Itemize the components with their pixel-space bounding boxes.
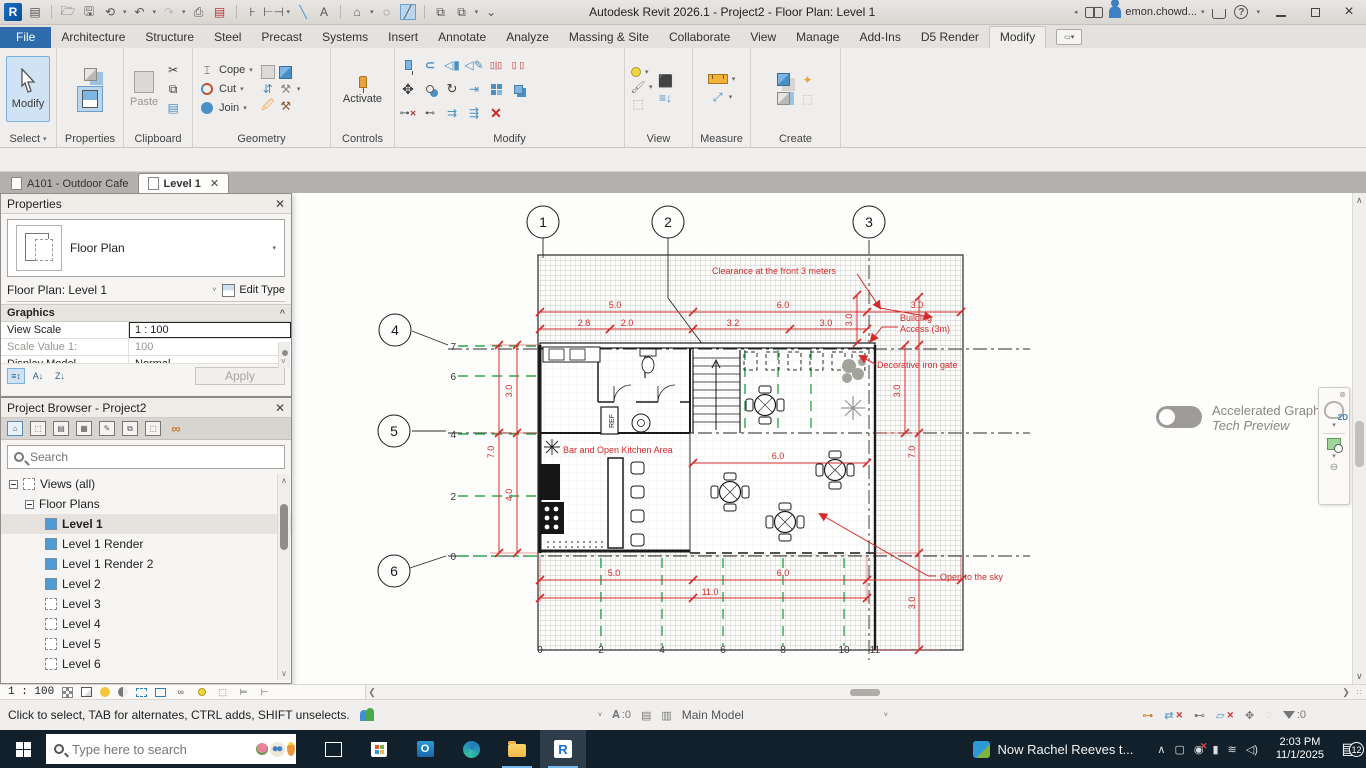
redo-icon[interactable]: ↷ xyxy=(161,4,177,20)
tab-d5-render[interactable]: D5 Render xyxy=(911,27,989,48)
type-name: Floor Plan xyxy=(70,241,272,255)
create-assembly-icon[interactable]: ⬚ xyxy=(800,91,816,107)
show-crop-region-icon[interactable] xyxy=(155,688,166,697)
print-icon[interactable]: ⎙ xyxy=(191,4,207,20)
default-3d-view-icon[interactable]: ⌂ xyxy=(349,4,365,20)
navbar-minimize-icon[interactable]: ⊖ xyxy=(1330,462,1338,473)
array-icon[interactable] xyxy=(488,81,504,97)
taskbar-search[interactable] xyxy=(46,734,296,764)
ribbon: Modify Select▾ Properties Paste ✂ ⧉ xyxy=(0,48,1366,148)
section-icon[interactable]: ◌ xyxy=(379,4,395,20)
news-icon xyxy=(973,741,990,758)
trim-multiple-icon[interactable]: ⇶ xyxy=(466,105,482,121)
project-browser-panel: Project Browser - Project2 ✕ ⌂ ⬚ ▤ ▦ ✎ ⧉… xyxy=(0,397,292,684)
project-browser-title[interactable]: Project Browser - Project2 ✕ xyxy=(1,398,291,418)
restore-button[interactable] xyxy=(1302,3,1328,21)
hide-category-icon[interactable]: ⬛ xyxy=(659,74,673,88)
floor-plan-view-icon xyxy=(45,578,57,590)
svg-text:6.0: 6.0 xyxy=(772,451,785,461)
analytical-model-icon[interactable]: ⬚ xyxy=(216,687,229,698)
tree-floor-plans[interactable]: Floor Plans xyxy=(1,494,291,514)
constraints-icon[interactable]: ⊨ xyxy=(237,687,250,698)
browser-sheets-icon[interactable]: ▦ xyxy=(76,421,92,436)
bar-note: Bar and Open Kitchen Area xyxy=(563,445,673,455)
override-graphics-icon[interactable]: 🖌 xyxy=(631,80,645,94)
tree-item-level-1-render[interactable]: Level 1 Render xyxy=(1,534,291,554)
svg-text:4: 4 xyxy=(659,645,665,656)
activate-button[interactable]: Activate xyxy=(343,93,382,105)
join-button[interactable]: Join xyxy=(219,102,239,114)
beam-joins-icon[interactable] xyxy=(279,65,293,79)
paint-icon[interactable]: 🖉 xyxy=(261,99,275,113)
displace-elements-icon[interactable]: ⬚ xyxy=(631,97,645,111)
dim-caret-icon[interactable]: ▾ xyxy=(287,8,291,16)
switch-windows-icon[interactable]: ⧉ xyxy=(454,4,470,20)
property-row-display-model[interactable]: Display Model Normal xyxy=(1,356,291,364)
tab-add-ins[interactable]: Add-Ins xyxy=(849,27,910,48)
infocenter-caret-icon[interactable]: ◂ xyxy=(1074,8,1078,16)
clearance-note: Clearance at the front 3 meters xyxy=(712,266,837,276)
view-tab-row: A101 - Outdoor Cafe Level 1 ✕ xyxy=(0,172,1366,193)
search-doodle-icon[interactable] xyxy=(256,742,295,757)
edge-icon xyxy=(463,741,480,758)
apply-button[interactable]: Apply xyxy=(195,367,285,385)
temporary-hide-icon[interactable] xyxy=(195,687,208,698)
qat-customize-icon[interactable]: ⌄ xyxy=(483,4,499,20)
floor-plan-view-icon xyxy=(45,638,57,650)
floor-plan-view-icon xyxy=(45,618,57,630)
panel-create: ✦ ⬚ Create xyxy=(751,48,841,147)
properties-window-icon[interactable]: ▤ xyxy=(27,4,43,20)
view-control-row: 1 : 100 ∞ ⬚ ⊨ ⊢ ❮ ❯ ∷ xyxy=(0,684,1366,699)
grid-bubble-5: 5 xyxy=(390,423,398,439)
redo-caret-icon[interactable]: ▾ xyxy=(182,8,186,16)
browser-tree: Views (all) Floor Plans Level 1 Level 1 … xyxy=(1,474,291,680)
tree-views-all[interactable]: Views (all) xyxy=(1,474,291,494)
system-tray: ∧ ▢ ◉✕ ▮ ≋ ◁) xyxy=(1157,743,1257,756)
taskbar-outlook[interactable]: O xyxy=(402,730,448,768)
graphics-section-header[interactable]: Graphics ^ xyxy=(1,304,291,322)
accelerated-graphics-widget: Accelerated Graphics Tech Preview xyxy=(1156,403,1336,433)
tab-analyze[interactable]: Analyze xyxy=(496,27,559,48)
tree-item-level-1-render-2[interactable]: Level 1 Render 2 xyxy=(1,554,291,574)
tray-mute-icon[interactable]: ◉✕ xyxy=(1194,743,1204,756)
press-drag-icon[interactable]: ◌ xyxy=(1265,709,1272,721)
match-properties-icon[interactable] xyxy=(82,67,98,83)
clock-date: 11/1/2025 xyxy=(1276,749,1324,761)
taskbar-search-input[interactable] xyxy=(72,742,248,757)
collapse-box-icon[interactable] xyxy=(9,480,18,489)
windows-taskbar: O R Now Rachel Reeves t... ∧ ▢ ◉✕ ▮ ≋ ◁)… xyxy=(0,730,1366,768)
create-parts-icon[interactable] xyxy=(776,91,792,107)
panel-clipboard-label[interactable]: Clipboard xyxy=(124,130,192,147)
select-pinned-icon[interactable]: ⊷ xyxy=(1194,709,1205,722)
properties-scrollbar[interactable]: ˅ xyxy=(278,342,290,368)
linework-icon[interactable]: ≡↓ xyxy=(659,91,673,105)
tree-item-level-6[interactable]: Level 6 xyxy=(1,654,291,674)
accelerated-graphics-toggle[interactable] xyxy=(1156,406,1202,428)
split-element-icon[interactable]: ▯|▯ xyxy=(488,57,504,73)
aligned-dimension-icon[interactable]: ⊢⊣ xyxy=(266,4,282,20)
tab-massing-site[interactable]: Massing & Site xyxy=(559,27,659,48)
panel-controls-label[interactable]: Controls xyxy=(331,130,394,147)
panel-create-label[interactable]: Create xyxy=(751,130,840,147)
taskbar-search-icon xyxy=(54,744,64,754)
browser-search-input[interactable] xyxy=(30,450,278,464)
home-caret-icon[interactable]: ▾ xyxy=(370,8,374,16)
entry-mat xyxy=(545,538,613,552)
tab-structure[interactable]: Structure xyxy=(135,27,204,48)
text-icon[interactable]: A xyxy=(316,4,332,20)
clock-time: 2:03 PM xyxy=(1279,736,1320,748)
edit-type-button[interactable]: Edit Type xyxy=(222,284,285,297)
move-icon[interactable]: ✥ xyxy=(400,81,416,97)
steering-wheel-icon[interactable]: 2D xyxy=(1324,401,1344,419)
tree-item-level-5[interactable]: Level 5 xyxy=(1,634,291,654)
tab-systems[interactable]: Systems xyxy=(312,27,378,48)
cope-button[interactable]: Cope xyxy=(219,64,245,76)
building-access-note-2: Access (3m) xyxy=(900,324,950,334)
unpin-icon[interactable]: ⊶✕ xyxy=(400,105,416,121)
measure-pin-icon[interactable]: ⊦ xyxy=(245,4,261,20)
browser-groups-icon[interactable]: ⧉ xyxy=(122,421,138,436)
panel-clipboard: Paste ✂ ⧉ ▤ Clipboard xyxy=(124,48,193,147)
visual-style-icon[interactable] xyxy=(81,687,92,697)
status-bar: Click to select, TAB for alternates, CTR… xyxy=(0,699,1366,730)
property-row-view-scale[interactable]: View Scale 1 : 100 xyxy=(1,322,291,339)
task-view-icon xyxy=(325,742,342,757)
panel-view-label[interactable]: View xyxy=(625,130,692,147)
activate-controls-icon xyxy=(355,74,371,90)
tag-icon[interactable]: ╲ xyxy=(295,4,311,20)
view-tab-level1[interactable]: Level 1 ✕ xyxy=(138,173,230,193)
taskbar-edge[interactable] xyxy=(448,730,494,768)
select-by-face-icon[interactable]: ▱✕ xyxy=(1216,709,1234,722)
cursor-icon xyxy=(18,68,38,94)
tree-item-level-1[interactable]: Level 1 xyxy=(1,514,291,534)
svg-text:7: 7 xyxy=(450,342,456,353)
svg-text:7.0: 7.0 xyxy=(907,446,917,459)
sync-caret-icon[interactable]: ▾ xyxy=(123,8,127,16)
create-similar-icon[interactable]: ✦ xyxy=(800,72,816,88)
tray-tablet-icon[interactable]: ▢ xyxy=(1174,743,1184,756)
mirror-draw-axis-icon[interactable]: ◁✎ xyxy=(466,57,482,73)
view-tab-sheet[interactable]: A101 - Outdoor Cafe xyxy=(2,174,138,193)
tray-volume-icon[interactable]: ◁) xyxy=(1246,743,1258,756)
tab-precast[interactable]: Precast xyxy=(251,27,312,48)
modify-button-label: Modify xyxy=(12,98,44,110)
demolish-icon[interactable]: ⚒ xyxy=(279,82,293,96)
tray-battery-icon[interactable]: ▮ xyxy=(1212,743,1218,756)
scroll-up-icon[interactable]: ∧ xyxy=(1356,195,1363,206)
browser-search[interactable] xyxy=(7,445,285,469)
pin-icon[interactable]: ⊷ xyxy=(422,105,438,121)
workset-list-icon[interactable]: ▤ xyxy=(641,709,651,722)
type-selector[interactable]: Floor Plan ▾ xyxy=(7,219,285,277)
view-scale-value[interactable]: 1 : 100 xyxy=(129,322,291,338)
taskbar-revit[interactable]: R xyxy=(540,730,586,768)
close-inactive-icon[interactable]: ⧉ xyxy=(433,4,449,20)
paste-icon[interactable] xyxy=(134,71,154,93)
tab-modify[interactable]: Modify xyxy=(989,26,1046,48)
browser-close-icon[interactable]: ✕ xyxy=(275,401,285,415)
copy-icon[interactable] xyxy=(422,81,438,97)
options-bar xyxy=(0,148,1366,172)
tree-item-level-2[interactable]: Level 2 xyxy=(1,574,291,594)
delete-icon[interactable]: ✕ xyxy=(488,105,504,121)
cut-geometry-icon xyxy=(199,81,215,97)
zoom-region-icon[interactable] xyxy=(1327,438,1341,450)
browser-views-icon[interactable]: ⬚ xyxy=(30,421,46,436)
detail-level-icon[interactable] xyxy=(62,687,73,698)
paste-label[interactable]: Paste xyxy=(130,96,158,108)
browser-links-icon[interactable]: ∞ xyxy=(168,421,184,436)
ribbon-tab-row: File Architecture Structure Steel Precas… xyxy=(0,25,1366,48)
svg-text:3.0: 3.0 xyxy=(892,385,902,398)
panel-view: ▾ 🖌▾ ⬚ ⬛ ≡↓ View xyxy=(625,48,693,147)
panel-select-label[interactable]: Select▾ xyxy=(0,130,56,147)
trim-single-icon[interactable]: ⇉ xyxy=(444,105,460,121)
align-icon[interactable] xyxy=(400,57,416,73)
horizontal-scroll-thumb[interactable] xyxy=(850,689,880,696)
gate-note: Decorative iron gate xyxy=(877,360,958,370)
properties-close-icon[interactable]: ✕ xyxy=(275,197,285,211)
crop-view-icon[interactable] xyxy=(136,688,147,697)
copy-to-clipboard-icon[interactable]: ⧉ xyxy=(165,81,181,97)
action-center-button[interactable]: ▤ 12 xyxy=(1332,739,1366,759)
split-with-gap-icon[interactable]: ▯ ▯ xyxy=(510,57,526,73)
scroll-left-icon[interactable]: ❮ xyxy=(366,687,378,698)
browser-toolbar: ⌂ ⬚ ▤ ▦ ✎ ⧉ ⬚ ∞ xyxy=(1,418,291,440)
save-icon[interactable]: 🖫 xyxy=(81,4,97,20)
user-name: emon.chowd... xyxy=(1125,6,1197,18)
start-button[interactable] xyxy=(0,730,46,768)
join-icon xyxy=(199,100,215,116)
tray-wifi-icon[interactable]: ≋ xyxy=(1228,743,1237,756)
browser-annotation-icon[interactable]: ✎ xyxy=(99,421,115,436)
match-type-icon[interactable]: ▤ xyxy=(165,100,181,116)
svg-text:10: 10 xyxy=(838,645,850,656)
instance-selector[interactable]: Floor Plan: Level 1 xyxy=(7,283,206,297)
sync-icon[interactable]: ⟲ xyxy=(102,4,118,20)
instance-caret-icon[interactable]: ˅ xyxy=(212,287,216,294)
hammer-icon[interactable]: ⚒ xyxy=(279,99,293,113)
select-underlay-icon[interactable]: ⇄✕ xyxy=(1164,709,1183,722)
svg-text:3.0: 3.0 xyxy=(844,314,854,327)
vertical-scrollbar[interactable]: ∧ ∨ xyxy=(1352,193,1366,684)
floor-plan-view-icon xyxy=(45,598,57,610)
tab-insert[interactable]: Insert xyxy=(378,27,428,48)
view-control-bar: 1 : 100 ∞ ⬚ ⊨ ⊢ xyxy=(0,685,366,699)
revit-app-icon: R xyxy=(554,740,572,758)
close-button[interactable]: × xyxy=(1336,3,1362,21)
panel-modify-tools: ⊂ ◁▮ ◁✎ ▯|▯ ▯ ▯ ✥ ↻ ⇥ ⊶✕ ⊷ ⇉ ⇶ ✕ xyxy=(395,48,625,147)
workset-caret-icon[interactable]: ˅ xyxy=(598,712,602,719)
svg-text:2: 2 xyxy=(450,492,456,503)
mirror-pick-axis-icon[interactable]: ◁▮ xyxy=(444,57,460,73)
svg-text:6.0: 6.0 xyxy=(777,300,790,310)
properties-panel-title[interactable]: Properties ✕ xyxy=(1,194,291,214)
svg-text:6: 6 xyxy=(450,372,456,383)
quick-access-toolbar: R ▤ 🗁 🖫 ⟲▾ ↶▾ ↷▾ ⎙ ▤ ⊦ ⊢⊣▾ ╲ A ⌂▾ ◌ ╱ ⧉ … xyxy=(4,3,499,21)
properties-palette-icon[interactable] xyxy=(77,86,103,112)
svg-text:7.0: 7.0 xyxy=(486,446,496,459)
collapse-box-icon[interactable] xyxy=(25,500,34,509)
drawing-area[interactable]: 1 2 3 4 5 6 7 6 4 2 0 0 2 4 6 8 10 xyxy=(0,193,1366,684)
close-hidden-icon[interactable]: ▤ xyxy=(212,4,228,20)
modify-tool-button[interactable]: Modify xyxy=(6,56,50,122)
window-title: Autodesk Revit 2026.1 - Project2 - Floor… xyxy=(589,5,875,19)
browser-home-icon[interactable]: ⌂ xyxy=(7,421,23,436)
grid-bubble-6: 6 xyxy=(390,563,398,579)
svg-text:6.0: 6.0 xyxy=(777,568,790,578)
svg-text:3.0: 3.0 xyxy=(504,385,514,398)
worksets-icon[interactable] xyxy=(360,708,376,722)
open-folder-icon[interactable]: 🗁 xyxy=(60,4,76,20)
svg-text:6: 6 xyxy=(720,645,726,656)
news-widget[interactable]: Now Rachel Reeves t... xyxy=(973,741,1134,758)
status-hint: Click to select, TAB for alternates, CTR… xyxy=(8,708,350,722)
navigation-bar: ⊗ 2D ▾ ▾ ⊖ xyxy=(1318,387,1350,505)
sort-za-icon[interactable]: Z↓ xyxy=(51,368,69,384)
svg-text:4: 4 xyxy=(450,430,456,441)
task-view-button[interactable] xyxy=(310,730,356,768)
resize-grip: ∷ xyxy=(1352,688,1366,697)
design-option-list-icon[interactable]: ▥ xyxy=(661,709,671,722)
switch-caret-icon[interactable]: ▾ xyxy=(475,8,479,16)
horizontal-scrollbar[interactable]: ❮ ❯ ∷ xyxy=(366,685,1366,699)
title-bar: R ▤ 🗁 🖫 ⟲▾ ↶▾ ↷▾ ⎙ ▤ ⊦ ⊢⊣▾ ╲ A ⌂▾ ◌ ╱ ⧉ … xyxy=(0,0,1366,25)
ref-label: REF xyxy=(609,414,616,428)
svg-text:0: 0 xyxy=(537,645,543,656)
app-store-cart-icon[interactable] xyxy=(1212,9,1226,19)
active-workset[interactable]: Main Model xyxy=(682,708,744,722)
tab-steel[interactable]: Steel xyxy=(204,27,251,48)
views-icon xyxy=(23,478,35,490)
cope-icon: ⌶ xyxy=(199,62,215,78)
navbar-close-icon[interactable]: ⊗ xyxy=(1339,390,1346,399)
help-icon[interactable]: ? xyxy=(1234,5,1248,19)
panel-modify-label[interactable]: Modify xyxy=(395,130,624,147)
svg-text:11: 11 xyxy=(870,645,881,656)
ribbon-display-toggle[interactable]: ▭▾ xyxy=(1056,29,1082,45)
browser-schedules-icon[interactable]: ▤ xyxy=(53,421,69,436)
scale-icon[interactable] xyxy=(510,81,526,97)
sort-az-icon[interactable]: A↓ xyxy=(29,368,47,384)
revit-window: R ▤ 🗁 🖫 ⟲▾ ↶▾ ↷▾ ⎙ ▤ ⊦ ⊢⊣▾ ╲ A ⌂▾ ◌ ╱ ⧉ … xyxy=(0,0,1366,768)
shadows-icon[interactable] xyxy=(118,687,128,697)
sun-path-icon[interactable] xyxy=(100,687,110,697)
undo-caret-icon[interactable]: ▾ xyxy=(153,8,157,16)
sheet-icon xyxy=(11,177,22,190)
account-menu[interactable]: emon.chowd... ▾ xyxy=(1109,6,1204,18)
design-options-caret-icon[interactable]: ˅ xyxy=(884,712,888,719)
floor-plan-view-icon xyxy=(45,558,57,570)
collapse-chevron-icon[interactable]: ^ xyxy=(280,308,285,318)
user-avatar-icon xyxy=(1109,6,1121,18)
revit-logo-icon[interactable]: R xyxy=(4,3,22,21)
browser-families-icon[interactable]: ⬚ xyxy=(145,421,161,436)
sort-default-icon[interactable]: ≡↕ xyxy=(7,368,25,384)
help-caret-icon[interactable]: ▾ xyxy=(1256,8,1260,16)
close-view-icon[interactable]: ✕ xyxy=(210,177,219,190)
create-group-icon[interactable] xyxy=(776,72,792,88)
notification-badge: 12 xyxy=(1349,742,1364,757)
minimize-button[interactable] xyxy=(1268,3,1294,21)
accel-subtitle: Tech Preview xyxy=(1212,418,1290,433)
tab-view[interactable]: View xyxy=(740,27,786,48)
tray-chevron-icon[interactable]: ∧ xyxy=(1157,743,1165,756)
search-magnifier-icon xyxy=(14,452,24,462)
svg-text:5.0: 5.0 xyxy=(608,568,621,578)
scroll-right-icon[interactable]: ❯ xyxy=(1340,687,1352,698)
rotate-icon[interactable]: ↻ xyxy=(444,81,460,97)
worksharing-display-icon[interactable]: ⊢ xyxy=(258,687,271,698)
split-face-icon[interactable]: ⇵ xyxy=(261,82,275,96)
cut-button[interactable]: Cut xyxy=(219,83,236,95)
file-explorer-icon xyxy=(508,744,526,757)
vertical-scroll-thumb[interactable] xyxy=(1355,421,1364,467)
measure-icon[interactable] xyxy=(708,74,728,84)
type-thumbnail-icon xyxy=(16,225,62,271)
taskbar-store[interactable] xyxy=(356,730,402,768)
undo-icon[interactable]: ↶ xyxy=(132,4,148,20)
taskbar-file-explorer[interactable] xyxy=(494,730,540,768)
building-access-note-1: Building xyxy=(900,313,932,323)
tab-manage[interactable]: Manage xyxy=(786,27,849,48)
filter-icon[interactable]: :0 xyxy=(1283,709,1306,721)
tab-collaborate[interactable]: Collaborate xyxy=(659,27,740,48)
svg-text:5.0: 5.0 xyxy=(609,300,622,310)
editable-only-icon[interactable]: 𝐀:0 xyxy=(612,709,631,722)
svg-text:3.2: 3.2 xyxy=(727,318,740,328)
drag-on-selection-icon[interactable]: ✥ xyxy=(1245,709,1254,722)
measure-between-icon[interactable]: ⤢ xyxy=(711,90,725,104)
type-selector-caret-icon[interactable]: ▾ xyxy=(272,244,276,252)
panel-properties-label[interactable]: Properties xyxy=(57,130,123,147)
trim-extend-icon[interactable]: ⇥ xyxy=(466,81,482,97)
browser-scrollbar[interactable]: ∧∨ xyxy=(277,474,290,680)
hide-elements-icon[interactable] xyxy=(631,67,641,77)
scroll-down-icon[interactable]: ∨ xyxy=(1356,671,1363,682)
scale-button[interactable]: 1 : 100 xyxy=(8,686,54,698)
panel-geometry: ⌶Cope▾ Cut▾ Join▾ ⇵⚒▾ 🖉⚒ Geometry xyxy=(193,48,331,147)
cut-to-clipboard-icon[interactable]: ✂ xyxy=(165,62,181,78)
panel-geometry-label[interactable]: Geometry xyxy=(193,130,330,147)
tree-item-level-3[interactable]: Level 3 xyxy=(1,594,291,614)
property-row-scale-value: Scale Value 1: 100 xyxy=(1,339,291,356)
wall-joins-icon[interactable] xyxy=(261,65,275,79)
tab-architecture[interactable]: Architecture xyxy=(51,27,135,48)
select-links-icon[interactable]: ⊶ xyxy=(1142,709,1153,722)
svg-text:0: 0 xyxy=(450,552,456,563)
reveal-hidden-icon[interactable]: ∞ xyxy=(174,687,187,698)
tab-file[interactable]: File xyxy=(0,27,51,48)
tree-item-level-4[interactable]: Level 4 xyxy=(1,614,291,634)
zoom-caret-icon[interactable]: ▾ xyxy=(1332,452,1336,460)
offset-icon[interactable]: ⊂ xyxy=(422,57,438,73)
tab-annotate[interactable]: Annotate xyxy=(428,27,496,48)
user-caret-icon: ▾ xyxy=(1201,8,1205,16)
search-icon[interactable] xyxy=(1085,7,1101,17)
thin-lines-icon[interactable]: ╱ xyxy=(400,4,416,20)
grid-bubble-3: 3 xyxy=(865,214,873,230)
taskbar-clock[interactable]: 2:03 PM 11/1/2025 xyxy=(1276,736,1324,762)
panel-measure-label[interactable]: Measure xyxy=(693,130,750,147)
wheel-caret-icon[interactable]: ▾ xyxy=(1332,421,1336,429)
panel-select: Modify Select▾ xyxy=(0,48,57,147)
edit-type-icon xyxy=(222,284,235,297)
